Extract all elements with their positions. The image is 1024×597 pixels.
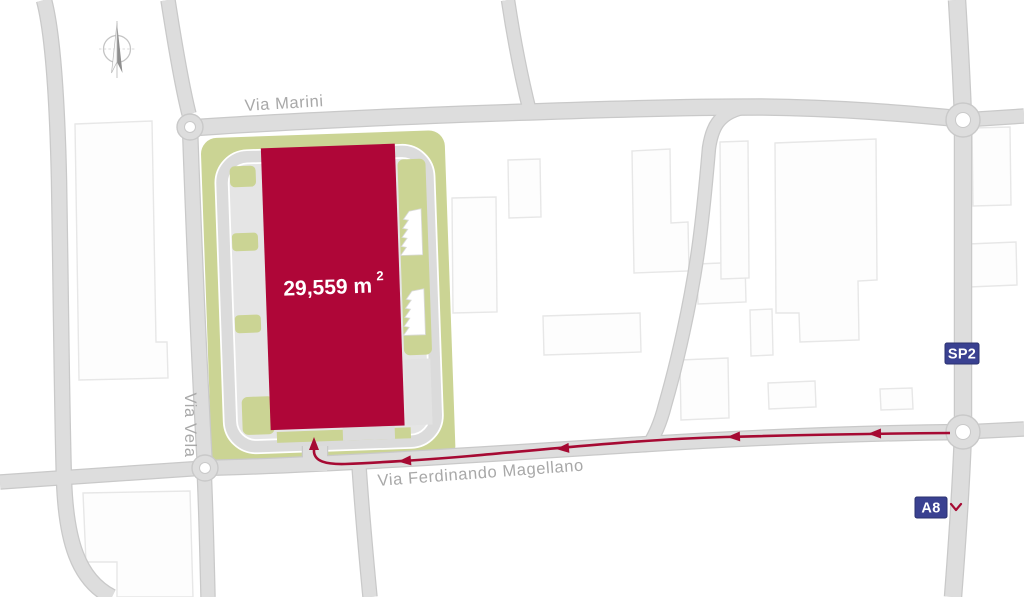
a8-badge-text: A8	[921, 501, 940, 517]
roundabout-island	[185, 122, 196, 133]
green-divider	[235, 314, 262, 333]
roundabout-northwest	[177, 114, 203, 140]
roundabout-northeast	[946, 103, 980, 137]
building-outline	[880, 388, 913, 410]
service-bay	[343, 426, 395, 441]
parking-stalls	[404, 359, 432, 426]
building-outline	[508, 159, 541, 218]
roundabout-southwest	[192, 455, 218, 481]
building-outline	[972, 127, 1011, 206]
road-south-stub	[204, 468, 208, 597]
building-outline	[680, 358, 729, 420]
green-divider	[229, 166, 256, 188]
sp2-badge: SP2	[945, 343, 979, 364]
map-canvas: 29,559 m 2	[0, 0, 1024, 597]
building-outline	[750, 309, 773, 356]
site-location-map: 29,559 m 2	[0, 0, 1024, 597]
roundabout-island	[956, 425, 971, 440]
roundabout-island	[956, 113, 971, 128]
roundabout-island	[200, 463, 211, 474]
sp2-badge-text: SP2	[948, 347, 976, 363]
building-outline	[768, 381, 816, 409]
building-outline	[452, 197, 497, 313]
roundabout-southeast	[946, 415, 980, 449]
street-label-via-vela: Via Vela	[181, 392, 199, 457]
green-divider	[232, 232, 259, 251]
building-outline	[968, 242, 1017, 287]
development-site: 29,559 m 2	[200, 130, 455, 470]
building-outline	[543, 313, 641, 355]
building-area-label: 29,559 m	[283, 275, 372, 301]
building-area-superscript: 2	[376, 268, 384, 283]
building-outline	[720, 141, 749, 279]
